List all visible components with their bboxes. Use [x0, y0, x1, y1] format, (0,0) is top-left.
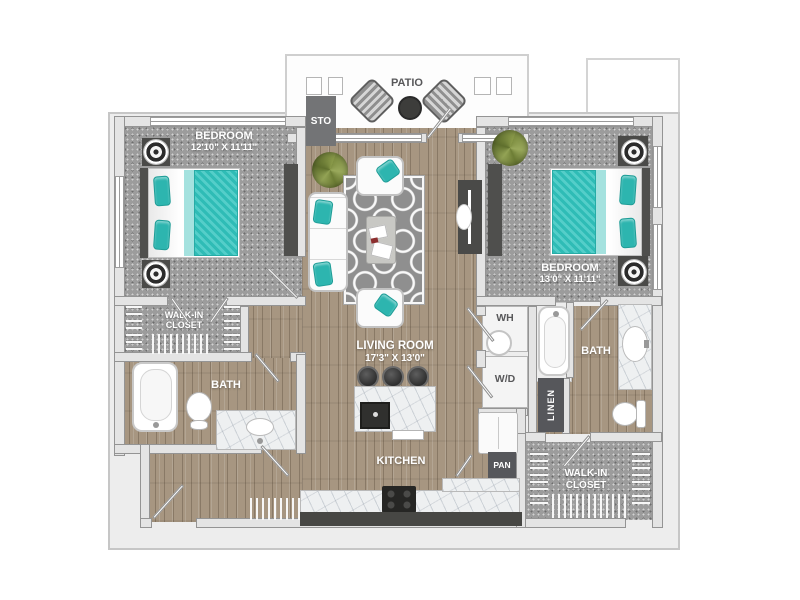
window — [150, 117, 286, 126]
sheet-band — [596, 170, 606, 254]
right-bed — [550, 168, 650, 256]
pantry: PAN — [488, 452, 516, 478]
window — [115, 176, 124, 268]
wall — [114, 296, 168, 306]
dresser — [488, 164, 502, 256]
wall — [140, 444, 150, 528]
room-dims: 17'3" X 13'0" — [335, 353, 455, 365]
patio-label: PATIO — [377, 77, 437, 89]
roofline-step — [586, 58, 680, 116]
closet-shelves — [632, 448, 650, 504]
bar-stool — [382, 366, 404, 388]
plant-icon — [492, 130, 528, 166]
pantry-label: PAN — [493, 460, 510, 470]
linen-label: LINEN — [546, 389, 556, 421]
pillow — [153, 175, 171, 206]
left-bed — [140, 168, 240, 258]
wall — [114, 116, 125, 456]
floor-plan: STO PATIO BEDROOM 12'10" X 11'11" BEDROO… — [0, 0, 800, 600]
living-room-label: LIVING ROOM 17'3" X 13'0" — [335, 340, 455, 365]
entry-closet-rods — [250, 498, 304, 520]
storage-closet: STO — [306, 96, 336, 146]
pillow — [619, 217, 637, 248]
bed-blanket — [194, 170, 238, 256]
lamp-icon — [144, 262, 168, 286]
closet-shelves — [224, 306, 240, 350]
closet-shelves — [126, 306, 142, 350]
pillow — [153, 219, 171, 250]
washer-dryer-label: W/D — [482, 373, 528, 385]
wall — [528, 306, 537, 436]
closet-line1: WALK-IN — [544, 468, 628, 480]
wall — [240, 306, 249, 356]
tv-icon — [456, 204, 472, 230]
refrigerator — [478, 412, 518, 454]
room-dims: 12'10" X 11'11" — [164, 143, 284, 154]
bathtub — [132, 362, 178, 432]
bar-stool — [407, 366, 429, 388]
sheet-band — [184, 170, 194, 256]
right-closet-label: WALK-IN CLOSET — [544, 468, 628, 491]
water-heater-label: WH — [482, 312, 528, 324]
toilet — [186, 392, 212, 422]
storage-label: STO — [311, 116, 331, 127]
dresser — [284, 164, 298, 256]
closet-line2: CLOSET — [544, 480, 628, 492]
right-bath-label: BATH — [572, 345, 620, 358]
left-closet-hall-floor — [244, 302, 302, 358]
wall — [296, 354, 306, 454]
pillow — [312, 199, 333, 225]
plant-icon — [312, 152, 348, 188]
bar-stool — [357, 366, 379, 388]
tub-basin — [544, 316, 566, 368]
room-name: BEDROOM — [510, 262, 630, 275]
bed-blanket — [552, 170, 596, 254]
left-bedroom-label: BEDROOM 12'10" X 11'11" — [164, 130, 284, 154]
lamp-icon — [622, 140, 646, 164]
faucet-icon — [153, 422, 159, 428]
faucet-icon — [553, 311, 559, 317]
pillow — [312, 261, 333, 287]
patio-column — [306, 77, 322, 95]
kitchen-counter-corner — [442, 478, 520, 492]
right-bedroom-label: BEDROOM 13'0" X 11'11" — [510, 262, 630, 286]
window — [653, 146, 662, 208]
dishwasher — [392, 430, 424, 440]
lower-cabinet-run — [300, 512, 522, 526]
wall — [140, 518, 152, 528]
room-name: LIVING ROOM — [335, 340, 455, 353]
window — [653, 224, 662, 290]
toilet-tank — [636, 400, 646, 428]
patio-column — [474, 77, 491, 95]
window — [508, 117, 634, 126]
stove — [382, 486, 416, 513]
island-sink — [360, 402, 390, 429]
faucet-icon — [373, 412, 378, 417]
headboard — [642, 168, 650, 256]
closet-rods — [552, 494, 628, 518]
patio-column — [328, 77, 343, 95]
pillow — [619, 174, 637, 205]
bathtub — [538, 306, 570, 376]
wall — [476, 296, 556, 306]
toilet — [612, 402, 638, 426]
wall — [476, 350, 486, 368]
faucet-icon — [257, 438, 263, 444]
window — [330, 134, 422, 142]
headboard — [140, 168, 148, 258]
patio-table — [398, 96, 422, 120]
faucet-icon — [644, 340, 649, 348]
toilet-tank — [190, 420, 208, 430]
vanity-sink — [246, 418, 274, 436]
room-dims: 13'0" X 11'11" — [510, 275, 630, 286]
linen-closet: LINEN — [538, 378, 564, 432]
kitchen-label: KITCHEN — [358, 455, 444, 468]
left-bath-label: BATH — [202, 379, 250, 392]
closet-rods — [152, 334, 212, 354]
room-name: BEDROOM — [164, 130, 284, 143]
tub-basin — [140, 369, 172, 421]
wall — [590, 432, 662, 442]
patio-column — [496, 77, 512, 95]
